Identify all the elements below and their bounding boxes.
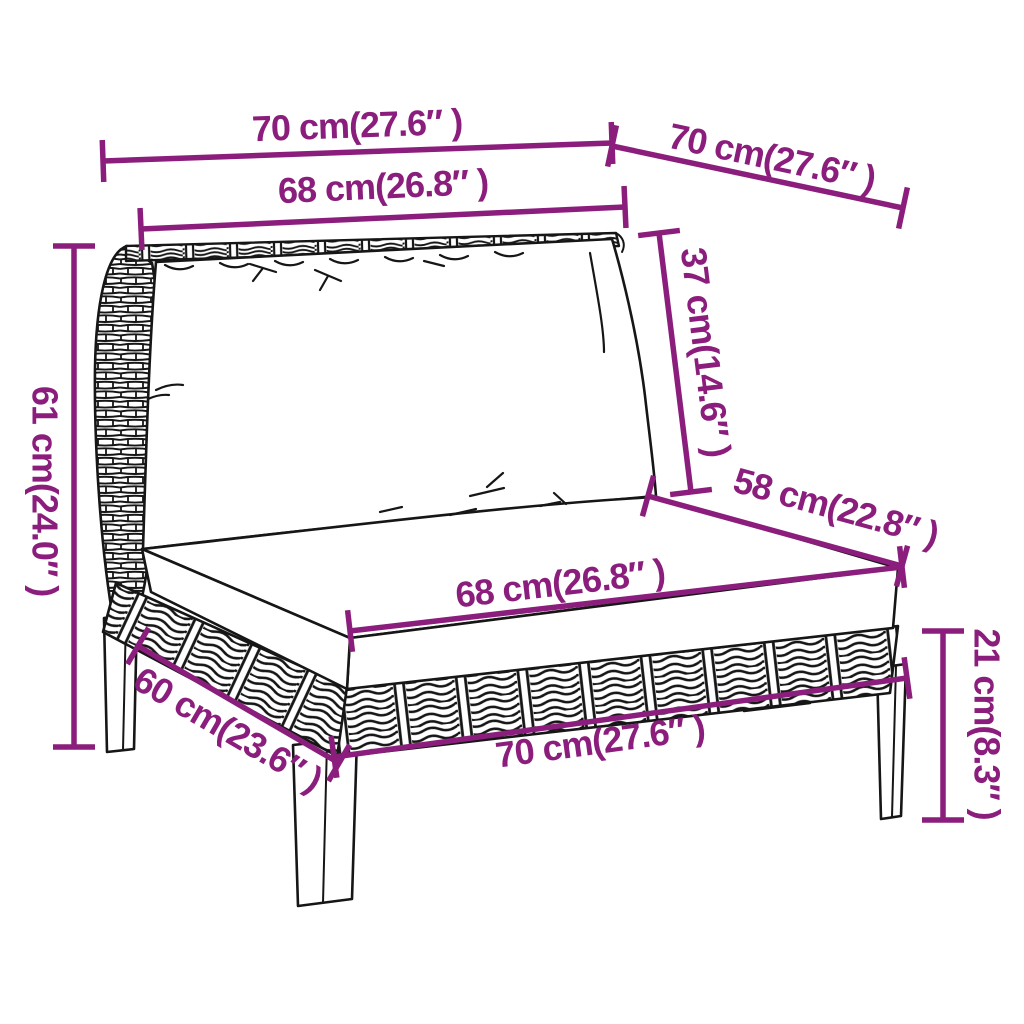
dimension-label-backrest-width: 68 cm(26.8″ ) bbox=[277, 161, 489, 212]
diagram-page: 70 cm(27.6″ )70 cm(27.6″ )68 cm(26.8″ )3… bbox=[0, 0, 1024, 1024]
dimension-top-depth: 70 cm(27.6″ ) bbox=[608, 115, 908, 229]
dimension-label-leg-height: 21 cm(8.3″ ) bbox=[967, 628, 1008, 819]
dimension-back-cushion-height: 37 cm(14.6″ ) bbox=[638, 230, 739, 494]
dimension-label-top-depth: 70 cm(27.6″ ) bbox=[665, 115, 879, 199]
dimension-label-top-width: 70 cm(27.6″ ) bbox=[251, 101, 463, 149]
dimension-leg-height: 21 cm(8.3″ ) bbox=[922, 628, 1008, 820]
dimension-total-height: 61 cm(24.0″ ) bbox=[25, 246, 96, 747]
dimension-label-total-height: 61 cm(24.0″ ) bbox=[25, 386, 66, 596]
diagram-canvas: 70 cm(27.6″ )70 cm(27.6″ )68 cm(26.8″ )3… bbox=[0, 0, 1024, 1024]
